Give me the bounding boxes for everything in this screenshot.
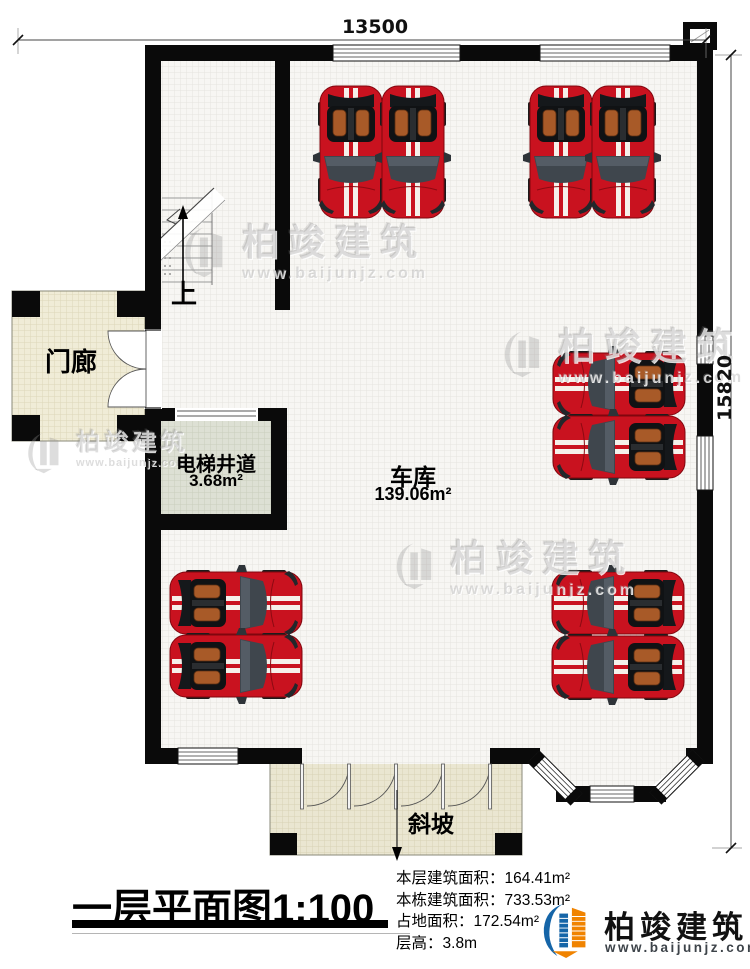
- stat-row: 本层建筑面积：164.41m²: [396, 868, 570, 890]
- car-top-view: [523, 86, 599, 218]
- stat-label: 本栋建筑面积：: [396, 892, 505, 909]
- stat-label: 占地面积：: [396, 913, 474, 930]
- wall-interior: [275, 45, 290, 310]
- window-top-2: [540, 45, 670, 61]
- elevator-wall-top-a: [161, 408, 175, 421]
- porch-column: [117, 415, 145, 441]
- stat-value: 3.8m: [443, 935, 477, 952]
- car-top-view: [375, 86, 451, 218]
- elevator-wall-right: [271, 408, 287, 530]
- stat-value: 172.54m²: [474, 913, 539, 930]
- stat-label: 本层建筑面积：: [396, 870, 505, 887]
- car-top-view: [553, 346, 685, 422]
- wall-top-b: [460, 45, 540, 61]
- car-top-view: [585, 86, 661, 218]
- stat-value: 164.41m²: [505, 870, 570, 887]
- porch-column: [117, 291, 145, 317]
- wall-top-a: [145, 45, 333, 61]
- window-right-1: [697, 336, 713, 364]
- car-top-view: [313, 86, 389, 218]
- elevator-door: [175, 408, 258, 421]
- car-top-view: [552, 565, 684, 641]
- car-top-view: [552, 629, 684, 705]
- wall-right-b: [697, 364, 713, 436]
- wall-right-a: [697, 45, 713, 336]
- porch-column: [12, 291, 40, 317]
- car-top-view: [553, 409, 685, 485]
- wall-bottom-b: [238, 748, 302, 764]
- elevator-floor: [161, 421, 271, 514]
- brand-logo-icon: [540, 901, 598, 959]
- window-top-1: [333, 45, 460, 61]
- title-underline-thin: [72, 933, 410, 934]
- brand-url: www.baijunjz.com: [605, 940, 750, 955]
- window-right-2: [697, 436, 713, 490]
- title-underline-bar: [72, 920, 388, 928]
- window-bottom-left: [178, 748, 238, 764]
- bay-window-bottom: [590, 786, 634, 802]
- stat-label: 层高：: [396, 935, 443, 952]
- wall-right-c: [697, 490, 713, 752]
- porch-column: [12, 415, 40, 441]
- car-top-view: [170, 565, 302, 641]
- floor-plan-page: { "dimensions": { "width_mm": "13500", "…: [0, 0, 750, 969]
- elevator-wall-bottom: [145, 514, 287, 530]
- car-top-view: [170, 628, 302, 704]
- floor-plan-svg: [0, 0, 750, 969]
- wall-bottom-a: [145, 748, 178, 764]
- ramp-column: [270, 833, 297, 855]
- ramp-column: [495, 833, 522, 855]
